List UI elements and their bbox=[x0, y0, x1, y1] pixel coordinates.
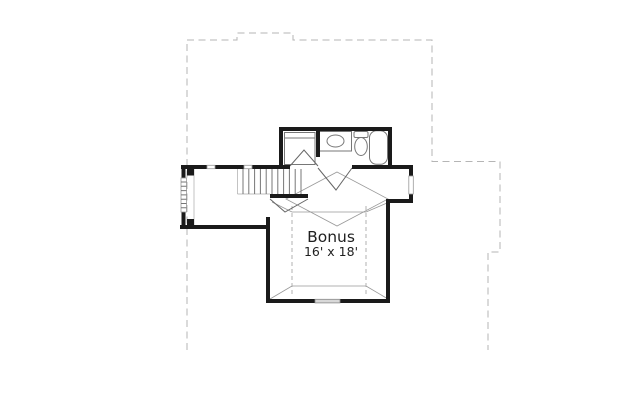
windows bbox=[181, 165, 413, 303]
toilet-tank bbox=[354, 132, 368, 138]
landing-left-window bbox=[181, 178, 187, 212]
bathroom-fixtures bbox=[285, 131, 388, 165]
sink-basin bbox=[327, 135, 344, 147]
stair-edge-lines bbox=[238, 169, 271, 194]
wall-post-top bbox=[187, 169, 194, 176]
vanity-counter bbox=[320, 132, 352, 152]
bonus-room-dimensions: 16' x 18' bbox=[304, 244, 358, 259]
walls bbox=[180, 127, 413, 303]
bay-right-window bbox=[409, 176, 414, 194]
closet-interior bbox=[285, 133, 316, 165]
wall-post-bottom bbox=[187, 219, 194, 226]
bonus-bottom-window bbox=[315, 299, 340, 303]
room-label-group: Bonus 16' x 18' bbox=[304, 228, 358, 259]
floor-plan-svg: Bonus 16' x 18' bbox=[0, 0, 620, 415]
toilet-bowl bbox=[355, 138, 368, 156]
floor-plan-canvas: Bonus 16' x 18' bbox=[0, 0, 620, 415]
bathroom-walls bbox=[279, 127, 413, 169]
closet-door-swing bbox=[290, 150, 318, 166]
hall-top-window-1 bbox=[207, 165, 215, 168]
staircase bbox=[238, 169, 302, 194]
stair-treads bbox=[243, 169, 301, 194]
hall-top-window-2 bbox=[244, 165, 252, 168]
bathtub bbox=[370, 131, 388, 165]
